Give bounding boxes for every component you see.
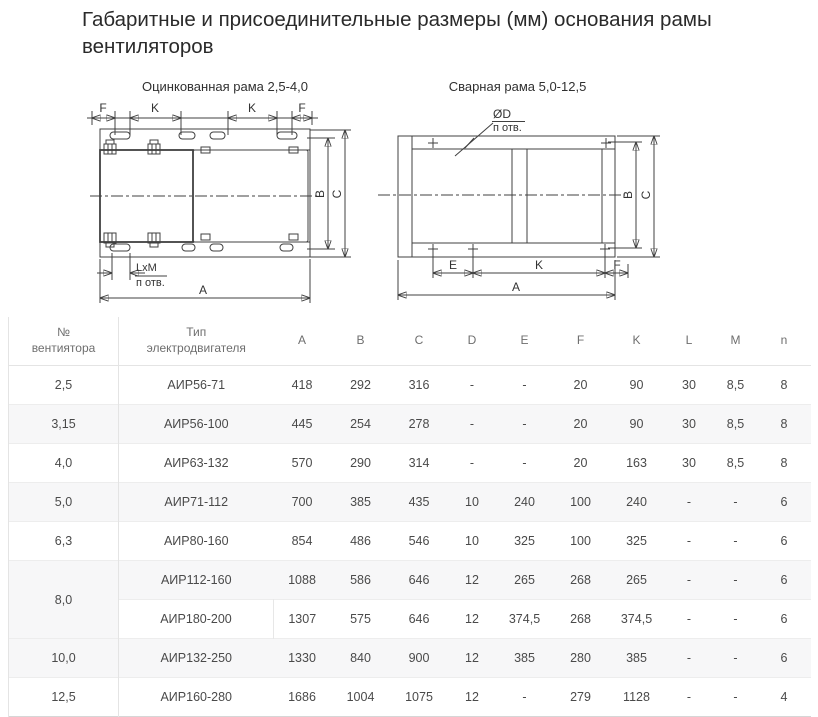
cell-d: 10 bbox=[448, 483, 497, 522]
cell-m: - bbox=[714, 678, 758, 717]
cell-b: 292 bbox=[331, 366, 391, 405]
cell-n: 6 bbox=[758, 522, 811, 561]
column-header-motor-type: Тип электродвигателя bbox=[119, 317, 274, 366]
cell-n: 6 bbox=[758, 600, 811, 639]
fan-number-cell: 3,15 bbox=[9, 405, 119, 444]
cell-c: 900 bbox=[391, 639, 448, 678]
cell-d: 12 bbox=[448, 678, 497, 717]
cell-l: 30 bbox=[665, 366, 714, 405]
cell-e: 385 bbox=[497, 639, 553, 678]
dim-label-f-left: F bbox=[99, 101, 106, 115]
fan-number-cell: 2,5 bbox=[9, 366, 119, 405]
motor-type-cell: АИР112-160 bbox=[119, 561, 274, 600]
fan-number-cell: 5,0 bbox=[9, 483, 119, 522]
column-header-a: A bbox=[274, 317, 331, 366]
motor-type-cell: АИР180-200 bbox=[119, 600, 274, 639]
dim-label-a: A bbox=[199, 283, 207, 297]
cell-a: 1088 bbox=[274, 561, 331, 600]
cell-c: 646 bbox=[391, 561, 448, 600]
cell-d: - bbox=[448, 405, 497, 444]
cell-b: 586 bbox=[331, 561, 391, 600]
cell-a: 854 bbox=[274, 522, 331, 561]
cell-c: 435 bbox=[391, 483, 448, 522]
dim-label-n-holes: п отв. bbox=[136, 277, 165, 289]
table-row: 12,5 АИР160-280 1686 1004 1075 12 - 279 … bbox=[9, 678, 811, 717]
cell-n: 4 bbox=[758, 678, 811, 717]
cell-f: 268 bbox=[553, 561, 609, 600]
cell-k: 90 bbox=[609, 405, 665, 444]
column-header-k: K bbox=[609, 317, 665, 366]
galvanized-frame-drawing: F K K F B C LxM п отв. A bbox=[85, 95, 365, 309]
cell-l: - bbox=[665, 678, 714, 717]
cell-a: 570 bbox=[274, 444, 331, 483]
cell-b: 575 bbox=[331, 600, 391, 639]
cell-a: 1307 bbox=[274, 600, 331, 639]
fan-number-cell: 10,0 bbox=[9, 639, 119, 678]
cell-m: 8,5 bbox=[714, 366, 758, 405]
fan-number-cell: 12,5 bbox=[9, 678, 119, 717]
cell-m: 8,5 bbox=[714, 444, 758, 483]
cell-a: 1686 bbox=[274, 678, 331, 717]
cell-n: 6 bbox=[758, 639, 811, 678]
cell-n: 8 bbox=[758, 366, 811, 405]
cell-k: 374,5 bbox=[609, 600, 665, 639]
dim-label-f-right: F bbox=[298, 101, 305, 115]
column-header-d: D bbox=[448, 317, 497, 366]
fan-number-cell: 6,3 bbox=[9, 522, 119, 561]
cell-e: - bbox=[497, 366, 553, 405]
column-header-m: M bbox=[714, 317, 758, 366]
cell-n: 8 bbox=[758, 444, 811, 483]
motor-type-cell: АИР132-250 bbox=[119, 639, 274, 678]
cell-l: 30 bbox=[665, 444, 714, 483]
table-row: 2,5 АИР56-71 418 292 316 - - 20 90 30 8,… bbox=[9, 366, 811, 405]
cell-l: - bbox=[665, 522, 714, 561]
table-header-row: № вентиятора Тип электродвигателя A B C … bbox=[9, 317, 811, 366]
column-header-b: B bbox=[331, 317, 391, 366]
motor-type-cell: АИР71-112 bbox=[119, 483, 274, 522]
cell-l: - bbox=[665, 600, 714, 639]
welded-frame-drawing: ØD п отв. B C E K F A bbox=[378, 92, 673, 308]
dim-label-e: E bbox=[449, 258, 457, 272]
cell-l: - bbox=[665, 561, 714, 600]
cell-k: 1128 bbox=[609, 678, 665, 717]
cell-c: 646 bbox=[391, 600, 448, 639]
dim-label-a: A bbox=[512, 280, 520, 294]
cell-k: 325 bbox=[609, 522, 665, 561]
table-row: 5,0 АИР71-112 700 385 435 10 240 100 240… bbox=[9, 483, 811, 522]
cell-b: 254 bbox=[331, 405, 391, 444]
table-row: 3,15 АИР56-100 445 254 278 - - 20 90 30 … bbox=[9, 405, 811, 444]
cell-c: 316 bbox=[391, 366, 448, 405]
cell-k: 240 bbox=[609, 483, 665, 522]
cell-f: 100 bbox=[553, 522, 609, 561]
cell-n: 6 bbox=[758, 561, 811, 600]
cell-f: 280 bbox=[553, 639, 609, 678]
cell-d: 12 bbox=[448, 600, 497, 639]
cell-e: 240 bbox=[497, 483, 553, 522]
cell-b: 1004 bbox=[331, 678, 391, 717]
dim-label-f: F bbox=[613, 258, 620, 272]
dim-label-k: K bbox=[535, 258, 543, 272]
table-row: 10,0 АИР132-250 1330 840 900 12 385 280 … bbox=[9, 639, 811, 678]
cell-e: 325 bbox=[497, 522, 553, 561]
cell-l: - bbox=[665, 483, 714, 522]
cell-l: 30 bbox=[665, 405, 714, 444]
diagram-title-galvanized: Оцинкованная рама 2,5-4,0 bbox=[85, 79, 365, 94]
cell-b: 840 bbox=[331, 639, 391, 678]
cell-c: 314 bbox=[391, 444, 448, 483]
cell-d: - bbox=[448, 444, 497, 483]
cell-n: 8 bbox=[758, 405, 811, 444]
cell-e: - bbox=[497, 678, 553, 717]
cell-m: - bbox=[714, 600, 758, 639]
table-row: 8,0 АИР112-160 1088 586 646 12 265 268 2… bbox=[9, 561, 811, 600]
cell-m: - bbox=[714, 561, 758, 600]
cell-a: 1330 bbox=[274, 639, 331, 678]
dim-label-k-right: K bbox=[248, 101, 256, 115]
dim-label-lxm: LxM bbox=[136, 262, 157, 274]
dim-label-n-holes: п отв. bbox=[493, 122, 522, 134]
cell-d: 12 bbox=[448, 639, 497, 678]
motor-type-cell: АИР56-71 bbox=[119, 366, 274, 405]
cell-d: 10 bbox=[448, 522, 497, 561]
cell-b: 486 bbox=[331, 522, 391, 561]
motor-type-cell: АИР80-160 bbox=[119, 522, 274, 561]
cell-e: 265 bbox=[497, 561, 553, 600]
cell-a: 445 bbox=[274, 405, 331, 444]
cell-f: 20 bbox=[553, 405, 609, 444]
cell-m: 8,5 bbox=[714, 405, 758, 444]
cell-c: 1075 bbox=[391, 678, 448, 717]
cell-m: - bbox=[714, 522, 758, 561]
dim-label-c: C bbox=[639, 190, 653, 199]
column-header-e: E bbox=[497, 317, 553, 366]
cell-f: 20 bbox=[553, 366, 609, 405]
column-header-fan-number: № вентиятора bbox=[9, 317, 119, 366]
cell-b: 290 bbox=[331, 444, 391, 483]
cell-e: - bbox=[497, 444, 553, 483]
fan-number-cell: 8,0 bbox=[9, 561, 119, 639]
column-header-c: C bbox=[391, 317, 448, 366]
dimensions-table: № вентиятора Тип электродвигателя A B C … bbox=[8, 317, 811, 717]
cell-k: 265 bbox=[609, 561, 665, 600]
motor-type-cell: АИР160-280 bbox=[119, 678, 274, 717]
dim-label-c: C bbox=[330, 189, 344, 198]
cell-a: 418 bbox=[274, 366, 331, 405]
dim-label-k-left: K bbox=[151, 101, 159, 115]
cell-d: - bbox=[448, 366, 497, 405]
cell-f: 279 bbox=[553, 678, 609, 717]
cell-e: 374,5 bbox=[497, 600, 553, 639]
cell-b: 385 bbox=[331, 483, 391, 522]
cell-e: - bbox=[497, 405, 553, 444]
page-title: Габаритные и присоединительные размеры (… bbox=[82, 6, 782, 60]
cell-f: 20 bbox=[553, 444, 609, 483]
cell-n: 6 bbox=[758, 483, 811, 522]
cell-c: 278 bbox=[391, 405, 448, 444]
table-row: 6,3 АИР80-160 854 486 546 10 325 100 325… bbox=[9, 522, 811, 561]
cell-c: 546 bbox=[391, 522, 448, 561]
cell-d: 12 bbox=[448, 561, 497, 600]
cell-k: 163 bbox=[609, 444, 665, 483]
table-row: 4,0 АИР63-132 570 290 314 - - 20 163 30 … bbox=[9, 444, 811, 483]
motor-type-cell: АИР56-100 bbox=[119, 405, 274, 444]
cell-k: 385 bbox=[609, 639, 665, 678]
motor-type-cell: АИР63-132 bbox=[119, 444, 274, 483]
fan-number-cell: 4,0 bbox=[9, 444, 119, 483]
dim-label-hole-diameter: ØD bbox=[493, 107, 511, 121]
cell-k: 90 bbox=[609, 366, 665, 405]
cell-f: 100 bbox=[553, 483, 609, 522]
cell-m: - bbox=[714, 639, 758, 678]
column-header-l: L bbox=[665, 317, 714, 366]
cell-a: 700 bbox=[274, 483, 331, 522]
dim-label-b: B bbox=[313, 190, 327, 198]
cell-l: - bbox=[665, 639, 714, 678]
column-header-n: n bbox=[758, 317, 811, 366]
table-row: АИР180-200 1307 575 646 12 374,5 268 374… bbox=[9, 600, 811, 639]
column-header-f: F bbox=[553, 317, 609, 366]
dim-label-b: B bbox=[621, 191, 635, 199]
cell-f: 268 bbox=[553, 600, 609, 639]
cell-m: - bbox=[714, 483, 758, 522]
